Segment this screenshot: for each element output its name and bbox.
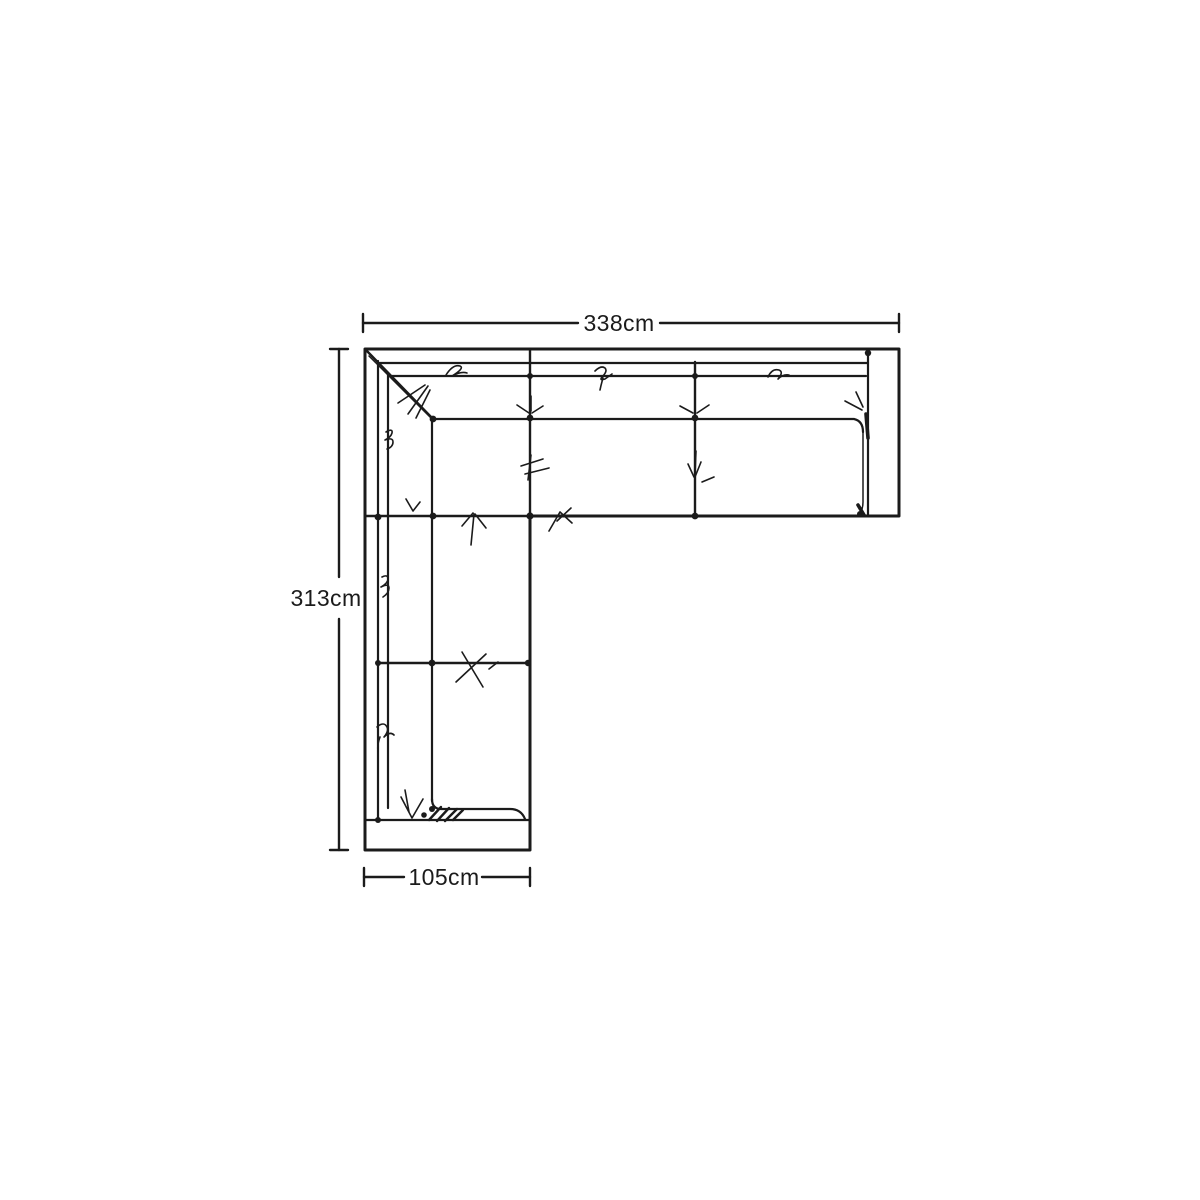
crease-marks [549,508,572,531]
shading-wedge [866,414,868,438]
crease-marks [688,451,714,482]
squiggle-mark [446,366,467,376]
dimension-label-chaise-width: 105cm [408,864,479,890]
squiggle-mark [595,367,612,390]
crease-marks [845,392,863,410]
back-cushion-front-edge [433,419,863,432]
chaise-cushion-front-edge [432,799,525,819]
crease-marks [401,790,423,818]
sofa-dimension-diagram: 338cm 313cm 105cm [0,0,1200,1200]
dimension-bottom: 105cm [364,864,530,890]
crease-marks [680,397,709,413]
fabric-sketch-marks [377,366,868,821]
sofa-top-view-drawing: 338cm 313cm 105cm [0,0,1200,1200]
sofa-body [365,349,899,850]
crease-marks [462,513,486,545]
dimension-label-width: 338cm [583,310,654,336]
crease-marks [521,455,549,480]
dimension-label-depth: 313cm [290,585,361,611]
crease-marks [456,652,498,687]
dimension-left: 313cm [290,349,361,850]
sofa-outline [365,349,899,850]
dimension-top: 338cm [363,310,899,336]
corner-diagonal-seam [365,349,433,419]
seam-junction-dots [375,350,872,823]
squiggle-mark [768,370,789,379]
squiggle-mark [377,724,394,751]
right-seat-cushion-side-edge [858,432,863,515]
crease-marks [406,499,420,511]
